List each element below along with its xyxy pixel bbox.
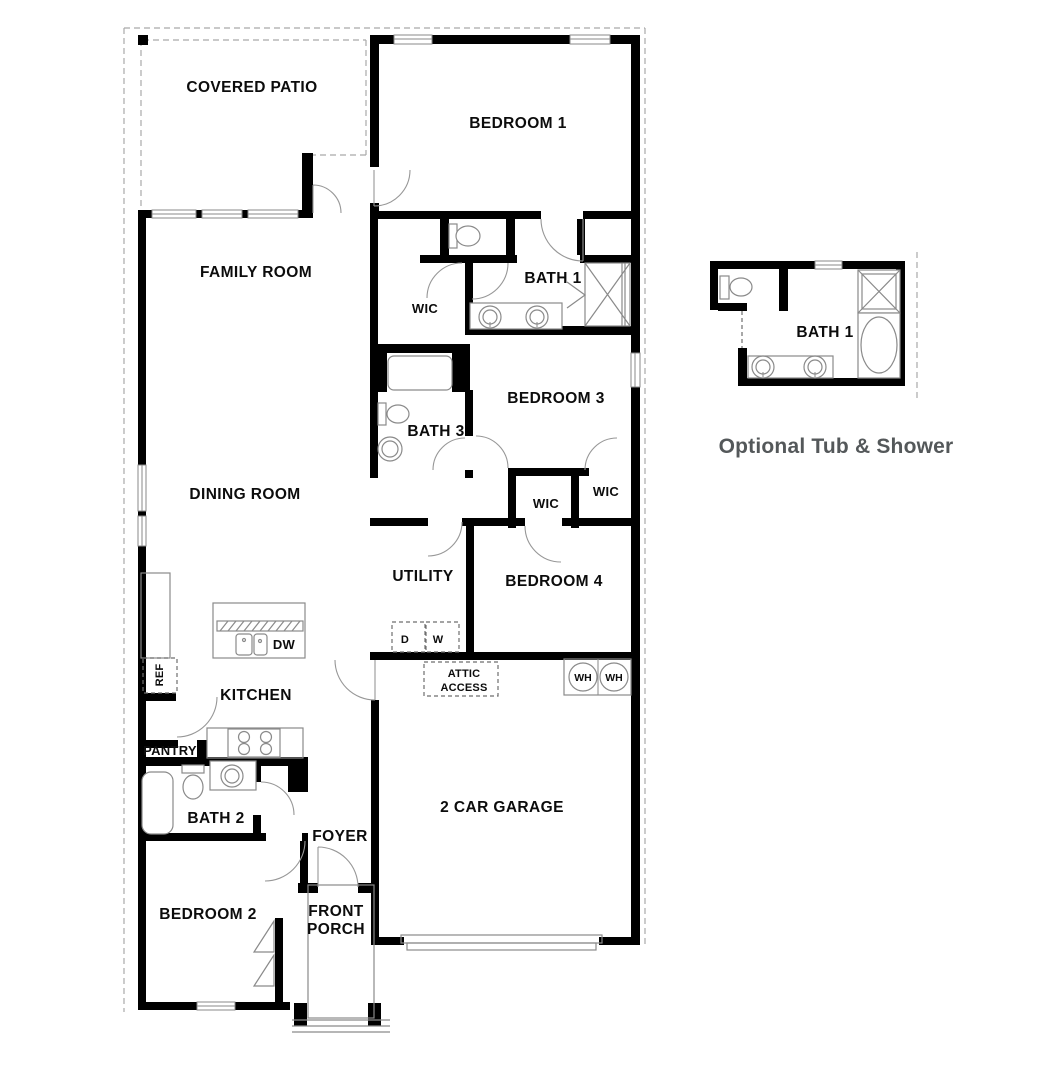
bath3-toilet <box>378 403 409 425</box>
detail-vanity <box>748 356 833 378</box>
walls <box>138 35 905 1026</box>
label-attic-line1: ATTIC <box>448 668 481 680</box>
room-label-wic-primary: WIC <box>412 301 438 316</box>
room-label-bedroom-2: BEDROOM 2 <box>159 906 256 923</box>
label-washer: W <box>433 634 444 646</box>
bath3-tub <box>388 356 452 390</box>
room-label-bedroom-3: BEDROOM 3 <box>507 390 604 407</box>
labels: COVERED PATIO BEDROOM 1 FAMILY ROOM WIC … <box>143 79 953 938</box>
detail-room-label-bath-1: BATH 1 <box>796 324 853 341</box>
room-label-bath-1: BATH 1 <box>524 270 581 287</box>
floor-plan: COVERED PATIO BEDROOM 1 FAMILY ROOM WIC … <box>0 0 1050 1070</box>
floor-plan-svg: COVERED PATIO BEDROOM 1 FAMILY ROOM WIC … <box>0 0 1050 1070</box>
room-label-family-room: FAMILY ROOM <box>200 264 312 281</box>
room-label-kitchen: KITCHEN <box>220 687 292 704</box>
room-label-front-porch-line1: FRONT <box>308 903 364 920</box>
label-dryer: D <box>401 634 409 646</box>
room-label-bedroom-4: BEDROOM 4 <box>505 573 602 590</box>
bath1-toilet <box>449 224 480 248</box>
room-label-pantry: PANTRY <box>143 743 197 758</box>
detail-toilet <box>720 276 752 299</box>
room-label-covered-patio: COVERED PATIO <box>186 79 317 96</box>
detail-tub <box>858 313 900 378</box>
room-label-dining-room: DINING ROOM <box>189 486 300 503</box>
room-label-foyer: FOYER <box>312 828 367 845</box>
detail-caption: Optional Tub & Shower <box>719 435 954 458</box>
kitchen-stove <box>207 728 303 758</box>
label-refrigerator: REF <box>154 664 166 687</box>
label-water-heater-1: WH <box>574 672 592 684</box>
room-label-wic-bedroom3: WIC <box>593 484 619 499</box>
bedroom2-closet-doors <box>254 921 274 986</box>
label-water-heater-2: WH <box>605 672 623 684</box>
garage-door <box>401 935 602 950</box>
room-label-bath-3: BATH 3 <box>407 423 464 440</box>
label-attic-line2: ACCESS <box>440 682 487 694</box>
room-label-bath-2: BATH 2 <box>187 810 244 827</box>
room-label-garage: 2 CAR GARAGE <box>440 799 564 816</box>
room-label-wic-bedroom4: WIC <box>533 496 559 511</box>
bath1-vanity <box>470 303 562 329</box>
room-label-bedroom-1: BEDROOM 1 <box>469 115 566 132</box>
room-label-utility: UTILITY <box>392 568 454 585</box>
room-label-front-porch-line2: PORCH <box>307 921 365 938</box>
bath3-sink <box>378 437 402 461</box>
detail-shower <box>858 270 900 313</box>
label-dishwasher: DW <box>273 637 296 652</box>
